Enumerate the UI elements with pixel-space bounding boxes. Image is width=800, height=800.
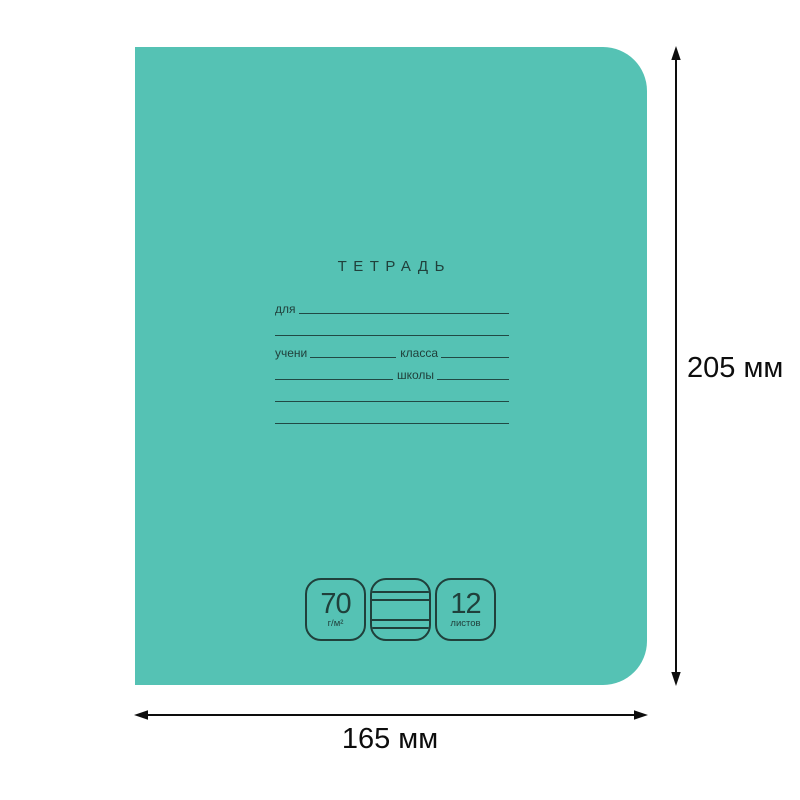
paper-density-unit: г/м² — [328, 618, 344, 629]
form-row-blank-1 — [275, 316, 509, 338]
form-line — [275, 334, 509, 336]
form-label-school: школы — [397, 369, 434, 382]
width-dimension-label: 165 мм — [325, 722, 455, 756]
form-label-class: класса — [400, 347, 438, 360]
form-row-pupil-class: учени класса — [275, 338, 509, 360]
spec-badges: 70 г/м² 12 листов — [305, 578, 496, 641]
lined-paper-icon — [370, 578, 431, 641]
sheet-count-badge: 12 листов — [435, 578, 496, 641]
form-line — [275, 400, 509, 402]
form-line — [299, 312, 509, 314]
sheet-count-unit: листов — [450, 618, 480, 629]
notebook-cover: ТЕТРАДЬ для учени класса школы — [135, 47, 647, 685]
form-line — [275, 378, 393, 380]
form-line — [310, 356, 396, 358]
width-dimension-arrow — [133, 707, 649, 723]
form-row-school: школы — [275, 360, 509, 382]
form-row-for: для — [275, 294, 509, 316]
form-line — [441, 356, 509, 358]
form-row-blank-2 — [275, 382, 509, 404]
height-dimension-arrow — [668, 45, 684, 687]
paper-density-value: 70 — [320, 590, 350, 618]
notebook-title: ТЕТРАДЬ — [135, 258, 647, 275]
product-dimension-figure: ТЕТРАДЬ для учени класса школы — [0, 0, 800, 800]
form-row-blank-3 — [275, 404, 509, 426]
paper-density-badge: 70 г/м² — [305, 578, 366, 641]
height-dimension-label: 205 мм — [687, 351, 783, 385]
owner-form: для учени класса школы — [275, 294, 509, 426]
form-line — [437, 378, 509, 380]
sheet-count-value: 12 — [450, 590, 480, 618]
form-label-for: для — [275, 303, 296, 316]
form-line — [275, 422, 509, 424]
form-label-pupil: учени — [275, 347, 307, 360]
